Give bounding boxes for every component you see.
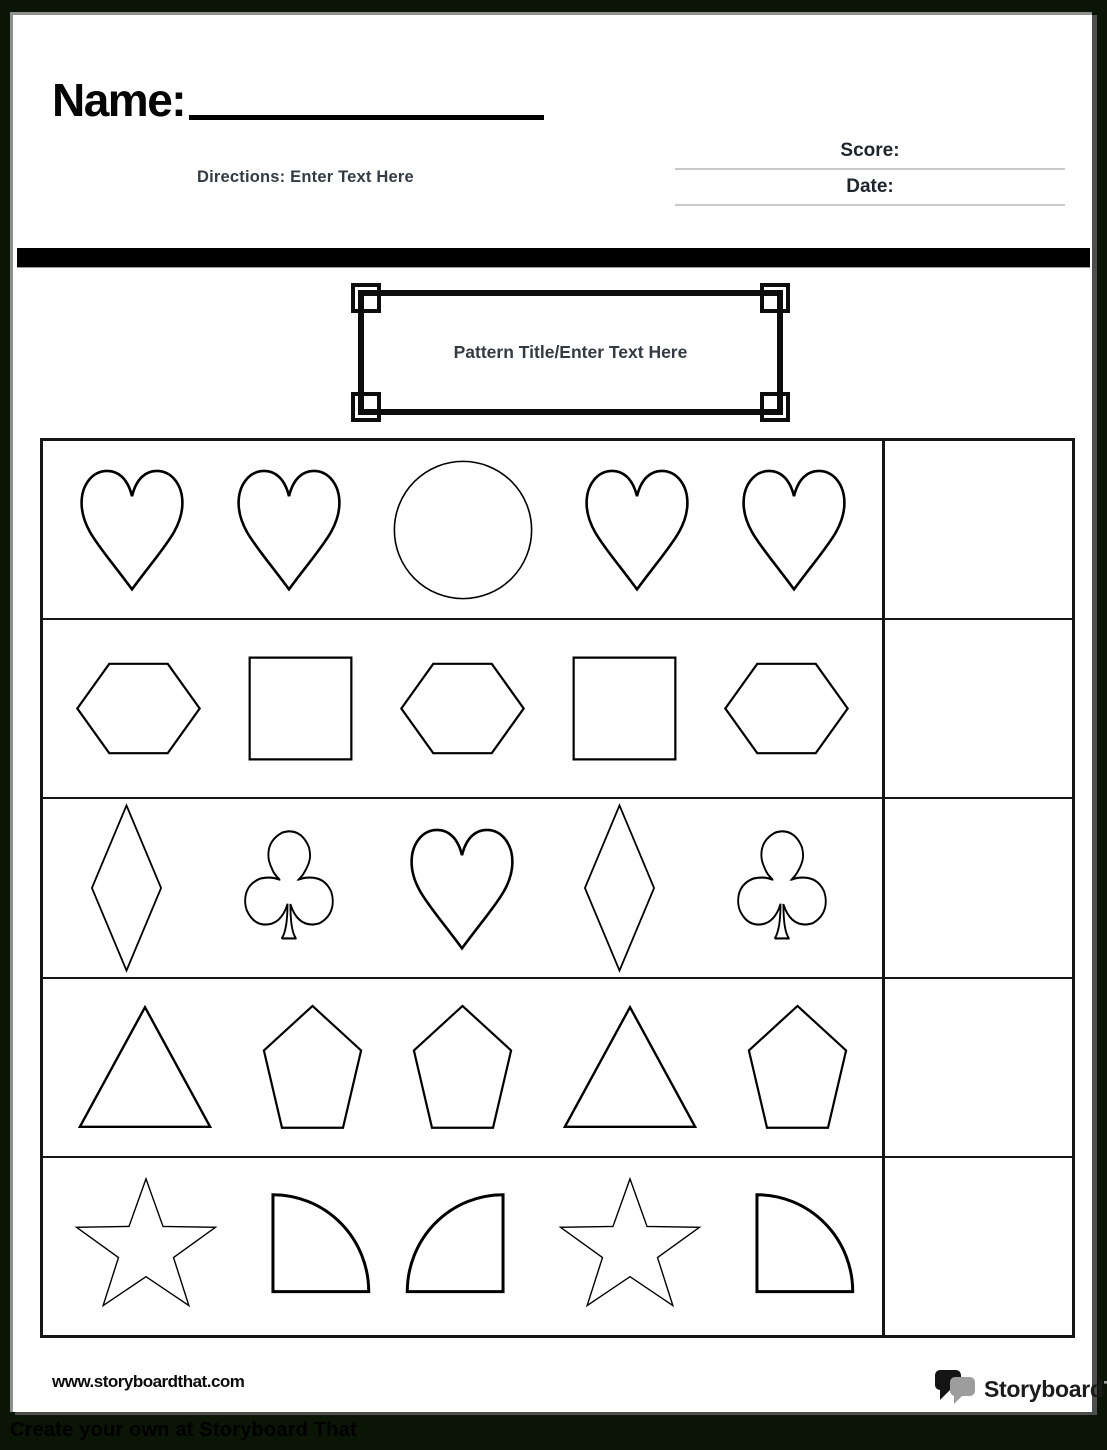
table-row	[43, 441, 1072, 618]
date-label: Date:	[675, 176, 1065, 198]
triangle-icon	[556, 1002, 704, 1132]
hexagon-icon	[720, 654, 853, 763]
heart-icon	[76, 463, 188, 596]
corner-ornament-icon	[351, 392, 381, 422]
heart-icon	[233, 463, 345, 596]
shape-sequence-cell	[43, 979, 882, 1156]
storyboardthat-logo[interactable]: StoryboardThat	[933, 1367, 1107, 1412]
hexagon-icon	[72, 654, 205, 763]
date-blank-line[interactable]	[675, 204, 1065, 206]
corner-ornament-icon	[760, 283, 790, 313]
answer-cell[interactable]	[882, 441, 1072, 618]
pattern-title-text[interactable]: Pattern Title/Enter Text Here	[454, 342, 688, 363]
heart-icon	[738, 463, 850, 596]
table-row: ♣♣	[43, 797, 1072, 976]
shape-sequence-cell	[43, 620, 882, 797]
website-link[interactable]: www.storyboardthat.com	[52, 1372, 244, 1392]
triangle-icon	[71, 1002, 219, 1132]
name-label: Name:	[52, 77, 185, 123]
club-icon: ♣	[720, 818, 844, 958]
pentagon-icon	[256, 1002, 369, 1133]
worksheet-page: Name: Directions: Enter Text Here Score:…	[10, 12, 1092, 1412]
hexagon-icon	[396, 654, 529, 763]
circle-icon	[390, 457, 536, 603]
pattern-title-box: Pattern Title/Enter Text Here	[358, 290, 783, 415]
shape-sequence-cell: ♣♣	[43, 799, 882, 976]
table-row	[43, 977, 1072, 1156]
diamond-icon	[574, 802, 665, 974]
svg-text:♣: ♣	[724, 818, 841, 958]
star-icon	[70, 1173, 222, 1319]
answer-cell[interactable]	[882, 979, 1072, 1156]
answer-cell[interactable]	[882, 620, 1072, 797]
score-label: Score:	[675, 140, 1065, 162]
speech-bubbles-icon	[933, 1367, 979, 1412]
logo-text: StoryboardThat	[984, 1376, 1107, 1403]
square-icon	[568, 652, 681, 765]
diamond-icon	[81, 802, 172, 974]
table-row	[43, 1156, 1072, 1335]
quarter-circle-right-icon	[257, 1189, 371, 1303]
corner-ornament-icon	[351, 283, 381, 313]
star-icon	[554, 1173, 706, 1319]
quarter-circle-left-icon	[405, 1189, 519, 1303]
shape-sequence-cell	[43, 441, 882, 618]
score-date-block: Score: Date:	[675, 140, 1065, 206]
square-icon	[244, 652, 357, 765]
corner-ornament-icon	[760, 392, 790, 422]
pentagon-icon	[406, 1002, 519, 1133]
bottom-banner-text: Create your own at Storyboard That	[10, 1419, 357, 1442]
club-icon: ♣	[227, 818, 351, 958]
table-row	[43, 618, 1072, 797]
logo-text-primary: Storyboard	[984, 1376, 1104, 1402]
pattern-table: ♣♣	[40, 438, 1075, 1338]
shape-sequence-cell	[43, 1158, 882, 1335]
heart-icon	[581, 463, 693, 596]
pentagon-icon	[741, 1002, 854, 1133]
heart-icon	[406, 822, 518, 955]
svg-text:♣: ♣	[231, 818, 348, 958]
answer-cell[interactable]	[882, 1158, 1072, 1335]
name-blank-line[interactable]	[189, 75, 544, 120]
name-field: Name:	[52, 75, 544, 123]
answer-cell[interactable]	[882, 799, 1072, 976]
directions-text[interactable]: Directions: Enter Text Here	[197, 168, 414, 187]
quarter-circle-right-icon	[741, 1189, 855, 1303]
score-blank-line[interactable]	[675, 168, 1065, 170]
header-divider-bar	[17, 248, 1090, 268]
